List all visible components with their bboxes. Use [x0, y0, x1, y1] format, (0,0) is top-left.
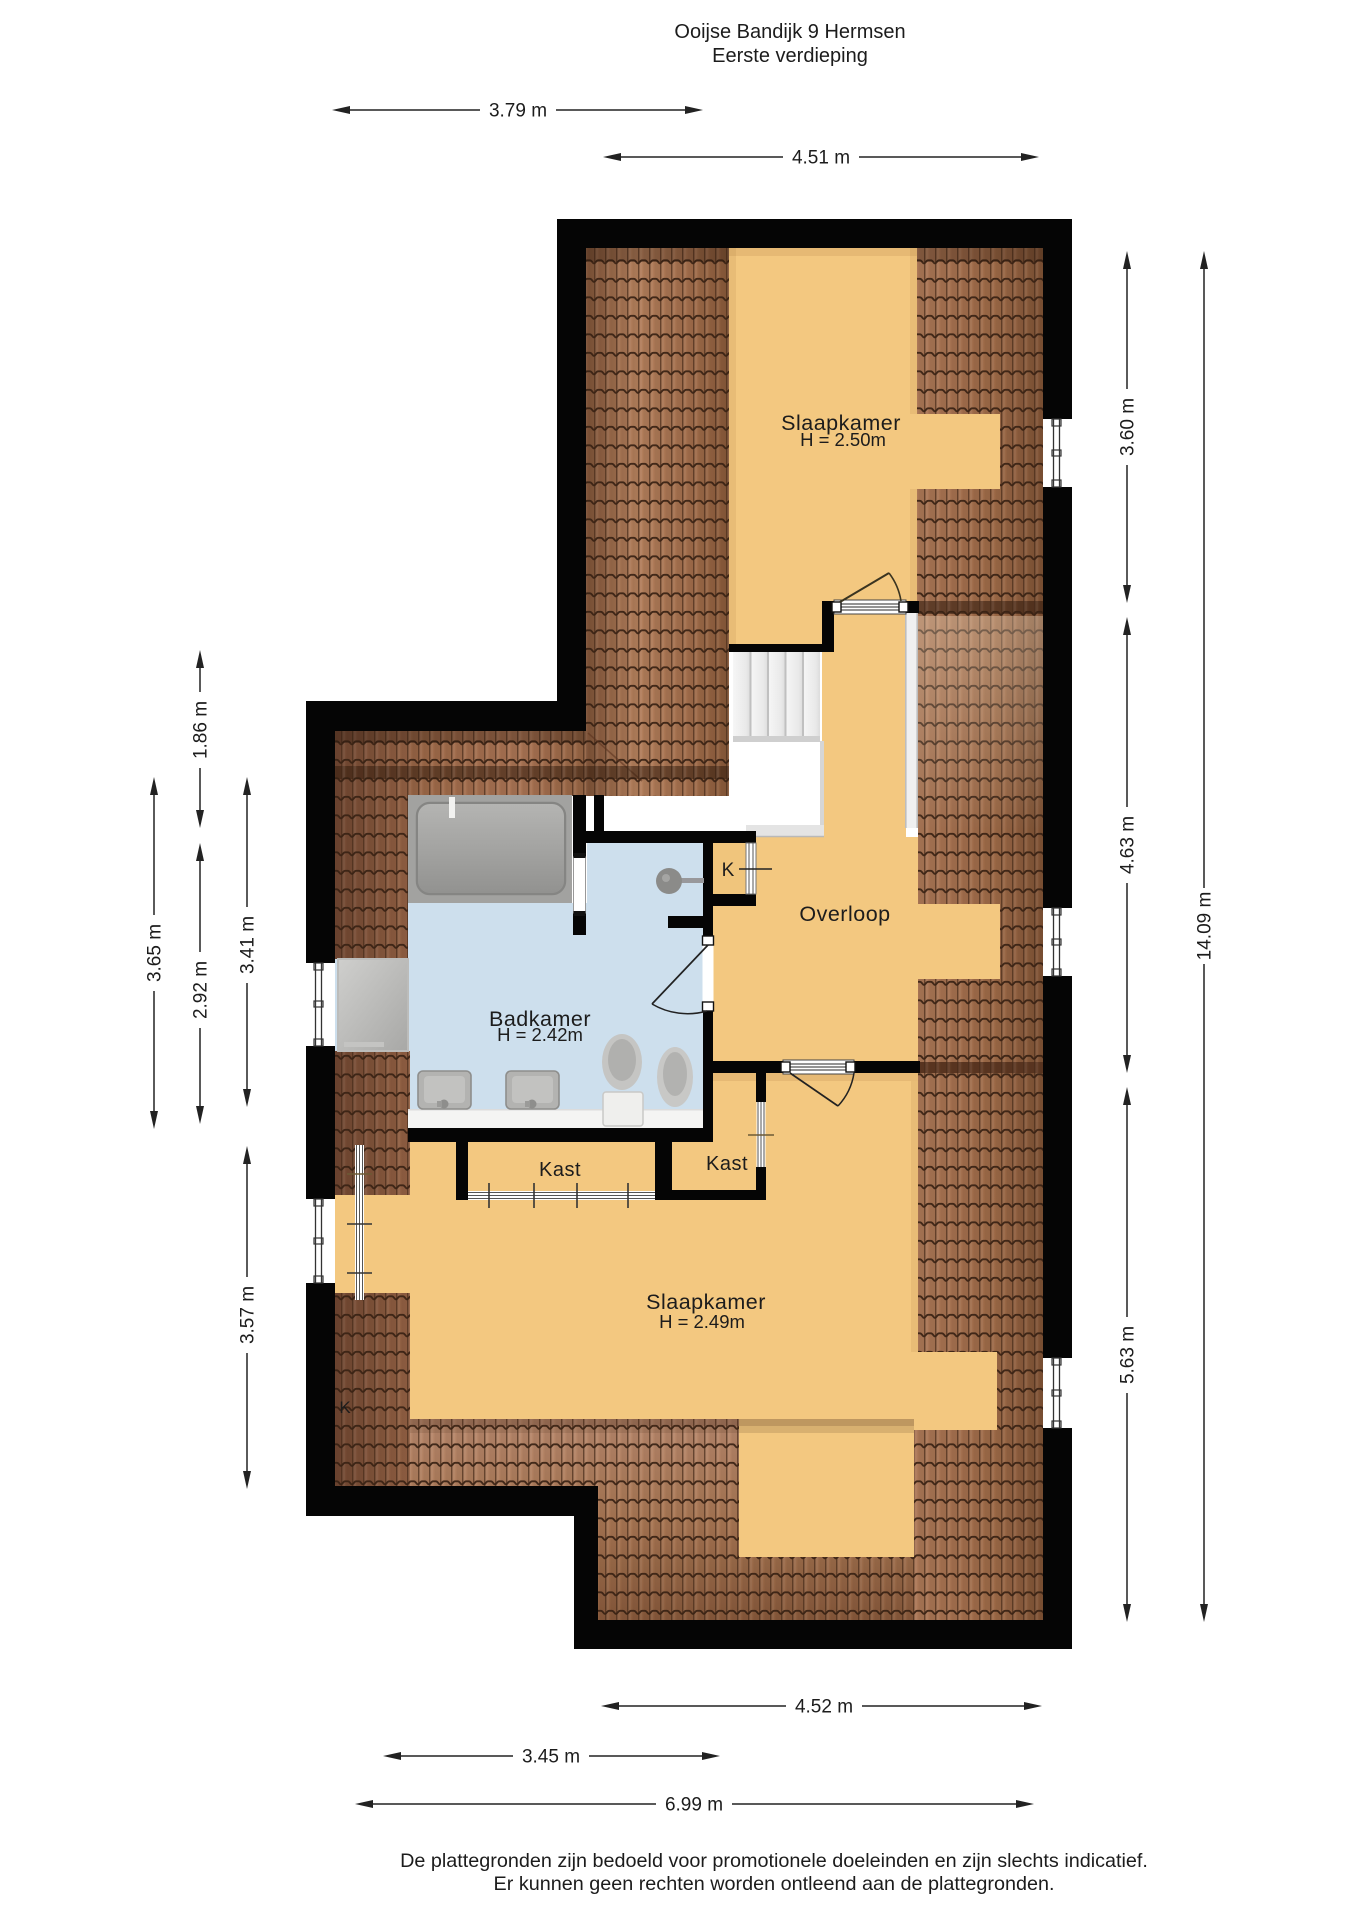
svg-text:5.63 m: 5.63 m [1118, 1326, 1139, 1384]
svg-text:De plattegronden zijn bedoeld: De plattegronden zijn bedoeld voor promo… [400, 1850, 1148, 1872]
svg-text:3.45 m: 3.45 m [522, 1747, 580, 1768]
svg-text:14.09 m: 14.09 m [1195, 892, 1216, 961]
svg-text:H = 2.50m: H = 2.50m [800, 429, 886, 450]
svg-text:4.52 m: 4.52 m [795, 1697, 853, 1718]
svg-text:3.79 m: 3.79 m [489, 101, 547, 122]
svg-text:3.60 m: 3.60 m [1118, 398, 1139, 456]
svg-text:Kast: Kast [539, 1159, 581, 1181]
svg-text:Overloop: Overloop [799, 902, 890, 926]
svg-text:Ooijse Bandijk 9 Hermsen: Ooijse Bandijk 9 Hermsen [674, 21, 905, 43]
svg-text:4.63 m: 4.63 m [1118, 816, 1139, 874]
svg-text:H = 2.42m: H = 2.42m [497, 1024, 583, 1045]
svg-text:K: K [339, 1398, 351, 1417]
svg-text:6.99 m: 6.99 m [665, 1795, 723, 1816]
svg-text:3.41 m: 3.41 m [238, 916, 259, 974]
svg-text:1.86 m: 1.86 m [191, 701, 212, 759]
svg-text:2.92 m: 2.92 m [191, 961, 212, 1019]
svg-text:Kast: Kast [706, 1153, 748, 1175]
svg-text:3.65 m: 3.65 m [145, 924, 166, 982]
svg-text:H = 2.49m: H = 2.49m [659, 1311, 745, 1332]
svg-text:Eerste verdieping: Eerste verdieping [712, 45, 868, 67]
svg-text:4.51 m: 4.51 m [792, 148, 850, 169]
svg-text:Er kunnen geen rechten worden: Er kunnen geen rechten worden ontleend a… [494, 1873, 1055, 1895]
svg-text:3.57 m: 3.57 m [238, 1286, 259, 1344]
svg-text:K: K [722, 860, 735, 881]
